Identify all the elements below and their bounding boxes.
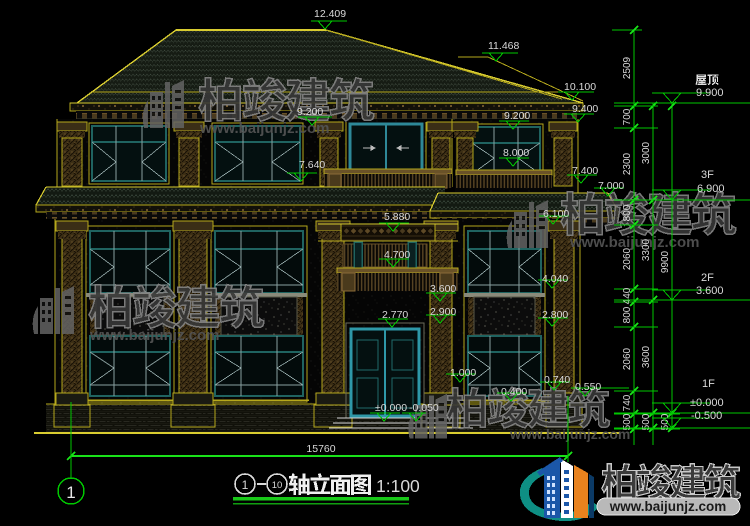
svg-text:2.770: 2.770: [382, 309, 408, 321]
svg-text:15760: 15760: [306, 443, 335, 455]
svg-text:-0.050: -0.050: [409, 402, 439, 414]
svg-text:1: 1: [242, 478, 249, 492]
svg-text:0.400: 0.400: [501, 386, 527, 398]
svg-text:6.100: 6.100: [543, 208, 569, 220]
svg-text:0.550: 0.550: [575, 381, 601, 393]
svg-text:6.900: 6.900: [697, 183, 725, 195]
svg-text:±0.000: ±0.000: [375, 402, 407, 414]
svg-text:9.400: 9.400: [572, 103, 598, 115]
svg-text:8.000: 8.000: [503, 147, 529, 159]
svg-text:1F: 1F: [702, 378, 715, 390]
svg-text:10: 10: [272, 480, 283, 491]
svg-text:11.468: 11.468: [488, 40, 519, 52]
svg-text:3.600: 3.600: [696, 285, 724, 297]
svg-text:www.baijunjz.com: www.baijunjz.com: [509, 426, 630, 442]
svg-text:3.600: 3.600: [430, 283, 456, 295]
svg-text:10.100: 10.100: [564, 81, 596, 93]
svg-text:2060: 2060: [622, 347, 633, 370]
svg-text:2060: 2060: [622, 247, 633, 270]
svg-text:740: 740: [622, 394, 633, 411]
svg-text:800: 800: [622, 204, 633, 221]
svg-text:9900: 9900: [660, 250, 671, 273]
svg-text:1.000: 1.000: [450, 367, 476, 379]
svg-text:www.baijunjz.com: www.baijunjz.com: [609, 499, 727, 514]
svg-text:2.900: 2.900: [430, 306, 456, 318]
svg-text:1:100: 1:100: [376, 476, 420, 496]
svg-text:3600: 3600: [641, 345, 652, 368]
svg-text:7.000: 7.000: [598, 180, 624, 192]
svg-text:1: 1: [66, 483, 75, 502]
svg-text:2300: 2300: [622, 152, 633, 175]
svg-text:4.040: 4.040: [542, 273, 568, 285]
svg-text:2.800: 2.800: [542, 309, 568, 321]
svg-text:2F: 2F: [701, 272, 714, 284]
svg-text:4.700: 4.700: [384, 249, 410, 261]
svg-text:3000: 3000: [641, 141, 652, 164]
svg-text:12.409: 12.409: [314, 8, 346, 20]
svg-text:7.640: 7.640: [299, 159, 325, 171]
svg-text:2509: 2509: [622, 56, 633, 79]
svg-text:800: 800: [622, 306, 633, 323]
svg-text:0.740: 0.740: [544, 374, 570, 386]
svg-text:±0.000: ±0.000: [690, 397, 724, 409]
svg-text:www.baijunjz.com: www.baijunjz.com: [89, 327, 219, 344]
svg-text:5.880: 5.880: [384, 211, 410, 223]
svg-text:9.900: 9.900: [696, 87, 724, 99]
svg-text:9.200: 9.200: [504, 110, 530, 122]
svg-text:7.400: 7.400: [572, 165, 598, 177]
svg-text:3300: 3300: [641, 238, 652, 261]
svg-text:3F: 3F: [701, 169, 714, 181]
svg-text:440: 440: [622, 287, 633, 304]
svg-text:9.200: 9.200: [297, 106, 323, 118]
svg-text:-0.500: -0.500: [691, 410, 722, 422]
svg-text:700: 700: [622, 108, 633, 125]
